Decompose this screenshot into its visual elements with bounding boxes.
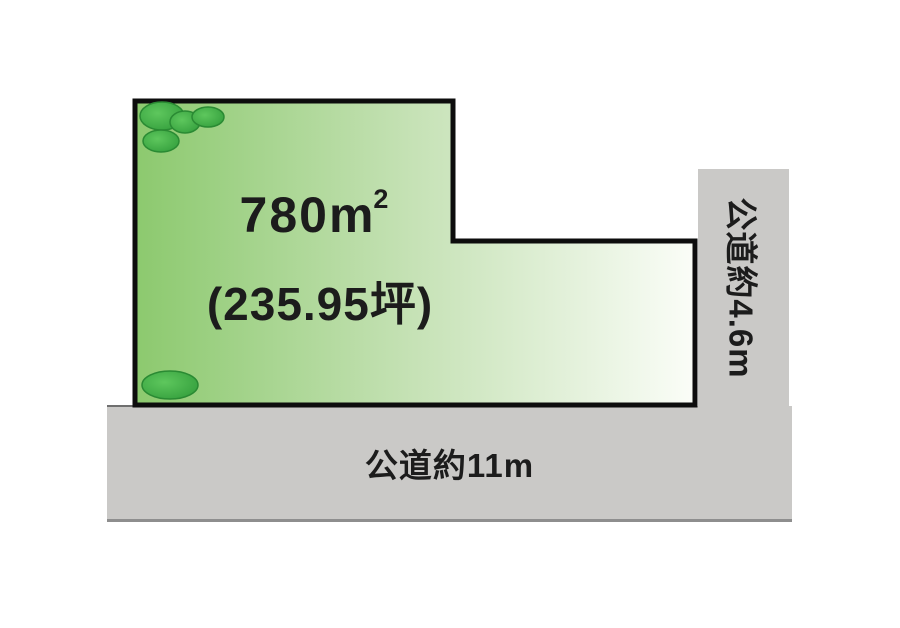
plot-area-value: 780m — [240, 187, 376, 243]
land-plot-shape — [135, 101, 695, 405]
plot-area-label: 780m2 — [150, 186, 480, 244]
land-plot-diagram: 公道約11m 公道約4.6m 780 — [0, 0, 900, 628]
tree-icon — [143, 130, 179, 152]
tree-icon — [142, 371, 198, 399]
tree-icon — [192, 107, 224, 127]
plot-area-superscript: 2 — [373, 184, 388, 214]
plot-tsubo-label: (235.95坪) — [140, 268, 500, 334]
tree-bottom-left — [142, 371, 198, 399]
